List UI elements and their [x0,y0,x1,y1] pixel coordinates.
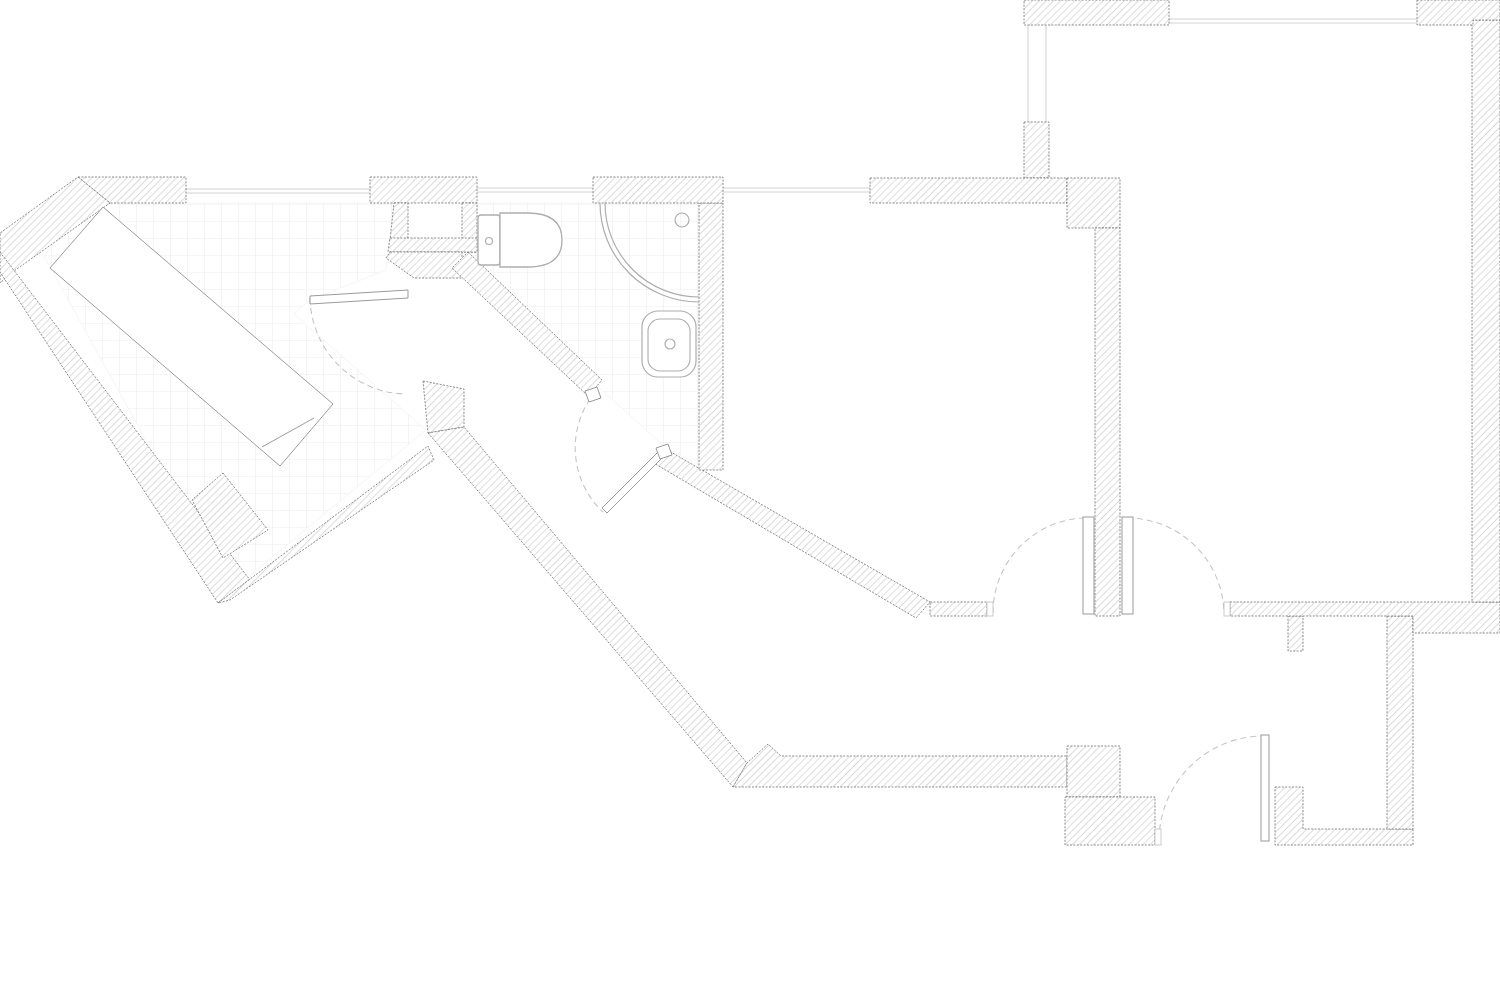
living-bottom-wall [930,602,987,616]
corridor-door-block [423,381,464,433]
living-door-jamb [987,602,993,616]
nook-top-stub [1288,616,1303,651]
niche-bottom-wall [388,238,477,252]
bathroom-door-leaf [602,450,665,513]
toilet-tank [478,215,500,265]
hall-lower-block [1065,797,1155,845]
sink-basin-outer [642,311,696,377]
living-southwest-wall [652,448,930,618]
middle-top-wall [370,177,477,203]
bedroom-door-jamb [1224,602,1230,616]
bedroom-door-leaf [1122,517,1133,614]
living-room-door-leaf [1083,517,1094,614]
bottom-hall-wall [733,744,1067,787]
living-room-door-swing-arc [993,518,1083,613]
under-niche-wall [386,252,462,278]
living-top-wall [870,178,1067,203]
entry-door-leaf [1261,735,1269,841]
bedroom-top-wall [1024,0,1169,25]
room-divider-wall [1095,228,1120,616]
bottomright-top-wall [1230,602,1500,633]
bathroom-top-wall [593,177,723,203]
entry-door-jamb [1155,829,1161,845]
living-corner-block [1067,178,1120,228]
window-stub-wall [1024,122,1049,178]
nook-right-wall [1387,616,1413,829]
entry-door-swing-arc [1159,736,1264,840]
bedroom-door-swing-arc [1127,518,1224,612]
bathroom-door-swing-arc [575,399,603,512]
right-outer-wall [1472,20,1500,602]
floor-plan-svg [0,0,1500,983]
floor-plan [0,0,1500,983]
hall-step-block [1067,746,1120,797]
toilet-bowl [500,213,562,267]
bathroom-right-wall [699,203,723,470]
